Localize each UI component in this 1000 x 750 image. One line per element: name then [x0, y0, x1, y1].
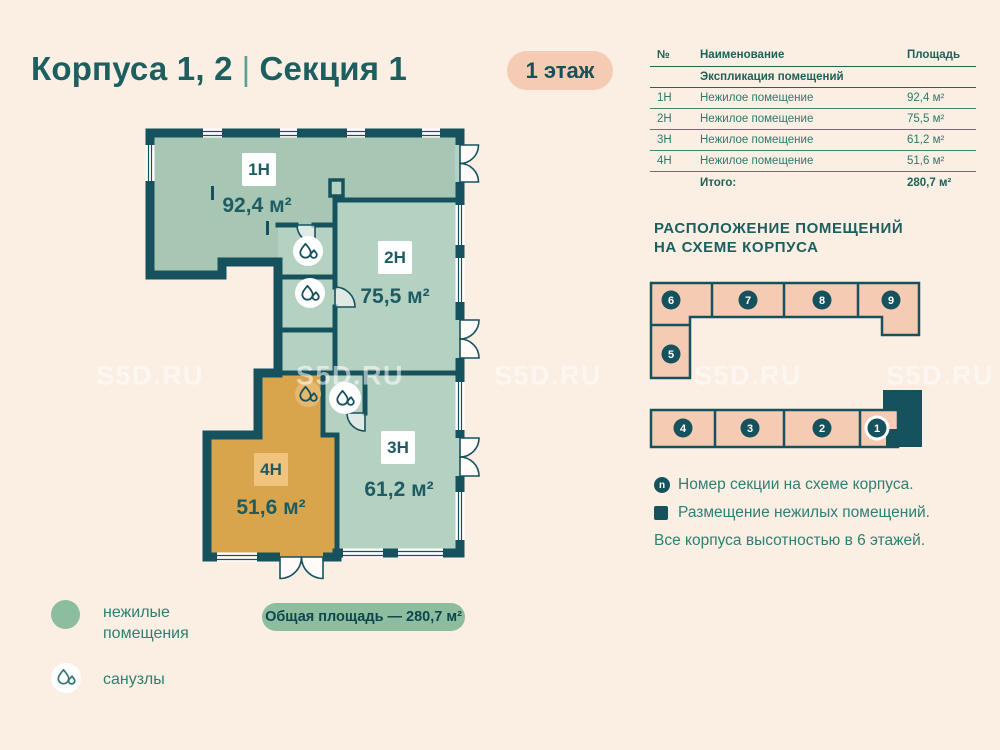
scheme-heading: РАСПОЛОЖЕНИЕ ПОМЕЩЕНИЙ НА СХЕМЕ КОРПУСА	[654, 219, 903, 257]
legend-section-number: n Номер секции на схеме корпуса.	[654, 476, 930, 494]
legend-note-label: Все корпуса высотностью в 6 этажей.	[654, 532, 925, 550]
section-badge-6: 6	[668, 295, 674, 307]
wall-jog	[330, 180, 343, 196]
row-area: 92,4 м²	[907, 92, 976, 104]
room-4n-area: 51,6 м²	[236, 496, 305, 519]
row-name: Нежилое помещение	[700, 134, 907, 146]
section-badge-7: 7	[745, 295, 751, 307]
green-circle-icon	[51, 600, 80, 629]
dimension-tick	[266, 221, 269, 235]
wc-legend-icon	[51, 663, 81, 693]
row-name: Нежилое помещение	[700, 155, 907, 167]
total-area-badge-label: Общая площадь — 280,7 м²	[265, 609, 462, 625]
row-num: 4Н	[650, 155, 700, 167]
legend-nonresidential-text: нежилые помещения	[103, 600, 189, 644]
room-2n-label: 2Н	[384, 248, 406, 267]
building-scheme: 6 7 8 9 5 4 3 2 1	[645, 276, 935, 456]
table-row: 4Н Нежилое помещение 51,6 м²	[650, 151, 976, 172]
explication-table: № Наименование Площадь Экспликация помещ…	[650, 49, 976, 194]
row-area: 61,2 м²	[907, 134, 976, 146]
room-4n-label: 4Н	[260, 460, 282, 479]
wc-circle	[295, 278, 325, 308]
legend-line1: нежилые	[103, 604, 170, 621]
wc-circle-highlighted	[295, 381, 321, 407]
legend-note: Все корпуса высотностью в 6 этажей.	[654, 532, 930, 550]
row-area: 75,5 м²	[907, 113, 976, 125]
room-1n-area: 92,4 м²	[222, 194, 291, 217]
table-row: 1Н Нежилое помещение 92,4 м²	[650, 88, 976, 109]
drops-icon	[53, 665, 79, 691]
scheme-legend: n Номер секции на схеме корпуса. Размеще…	[654, 476, 930, 560]
section-badge-4: 4	[680, 423, 687, 435]
row-num: 1Н	[650, 92, 700, 104]
section-badge-3: 3	[747, 423, 753, 435]
table-header-row: № Наименование Площадь	[650, 49, 976, 67]
square-icon	[654, 506, 668, 520]
total-area-badge: Общая площадь — 280,7 м²	[262, 603, 465, 631]
legend-line2: помещения	[103, 625, 189, 642]
section-badge-1-active: 1	[874, 423, 880, 435]
scheme-heading-line1: РАСПОЛОЖЕНИЕ ПОМЕЩЕНИЙ	[654, 219, 903, 238]
floor-badge[interactable]: 1 этаж	[507, 51, 613, 90]
room-3n-label: 3Н	[387, 438, 409, 457]
title-buildings: Корпуса 1, 2	[31, 50, 233, 87]
n-circle-letter: n	[659, 480, 665, 491]
floor-plan: 1Н 92,4 м² 2Н 75,5 м² 3Н 61,2 м² 4Н 51,6…	[135, 118, 487, 588]
wc-circle	[293, 236, 323, 266]
legend-bathrooms: санузлы	[51, 663, 189, 693]
dimension-tick	[211, 186, 214, 200]
section-badge-5: 5	[668, 349, 674, 361]
legend-section-number-label: Номер секции на схеме корпуса.	[678, 476, 914, 494]
page-title: Корпуса 1, 2|Секция 1	[31, 50, 407, 88]
col-header-name: Наименование	[700, 49, 907, 61]
floor-badge-label: 1 этаж	[526, 58, 595, 84]
legend-nonresidential-label: Размещение нежилых помещений.	[678, 504, 930, 522]
total-area: 280,7 м²	[907, 177, 976, 189]
col-header-area: Площадь	[907, 49, 976, 61]
total-label: Итого:	[700, 177, 907, 189]
page: Корпуса 1, 2|Секция 1 1 этаж № Наименова…	[0, 0, 1000, 750]
legend-nonresidential: нежилые помещения	[51, 600, 189, 644]
title-section: Секция 1	[259, 50, 407, 87]
table-row: 3Н Нежилое помещение 61,2 м²	[650, 130, 976, 151]
n-circle-icon: n	[654, 477, 670, 493]
scheme-heading-line2: НА СХЕМЕ КОРПУСА	[654, 238, 903, 257]
row-name: Нежилое помещение	[700, 92, 907, 104]
watermark: S5D.RU	[494, 361, 602, 392]
room-1n-label: 1Н	[248, 160, 270, 179]
row-area: 51,6 м²	[907, 155, 976, 167]
section-badge-9: 9	[888, 295, 894, 307]
wc-circle	[329, 382, 361, 414]
row-num: 3Н	[650, 134, 700, 146]
table-section-header: Экспликация помещений	[650, 67, 976, 88]
row-name: Нежилое помещение	[700, 113, 907, 125]
legend-bathrooms-text: санузлы	[103, 663, 165, 690]
room-3n-area: 61,2 м²	[364, 478, 433, 501]
room-2n-area: 75,5 м²	[360, 285, 429, 308]
section-badge-2: 2	[819, 423, 825, 435]
row-num: 2Н	[650, 113, 700, 125]
plan-legend: нежилые помещения санузлы	[51, 600, 189, 712]
table-total-row: Итого: 280,7 м²	[650, 172, 976, 194]
title-divider: |	[242, 50, 251, 87]
section-badge-8: 8	[819, 295, 825, 307]
legend-nonresidential-placement: Размещение нежилых помещений.	[654, 504, 930, 522]
col-header-num: №	[650, 49, 700, 61]
table-row: 2Н Нежилое помещение 75,5 м²	[650, 109, 976, 130]
